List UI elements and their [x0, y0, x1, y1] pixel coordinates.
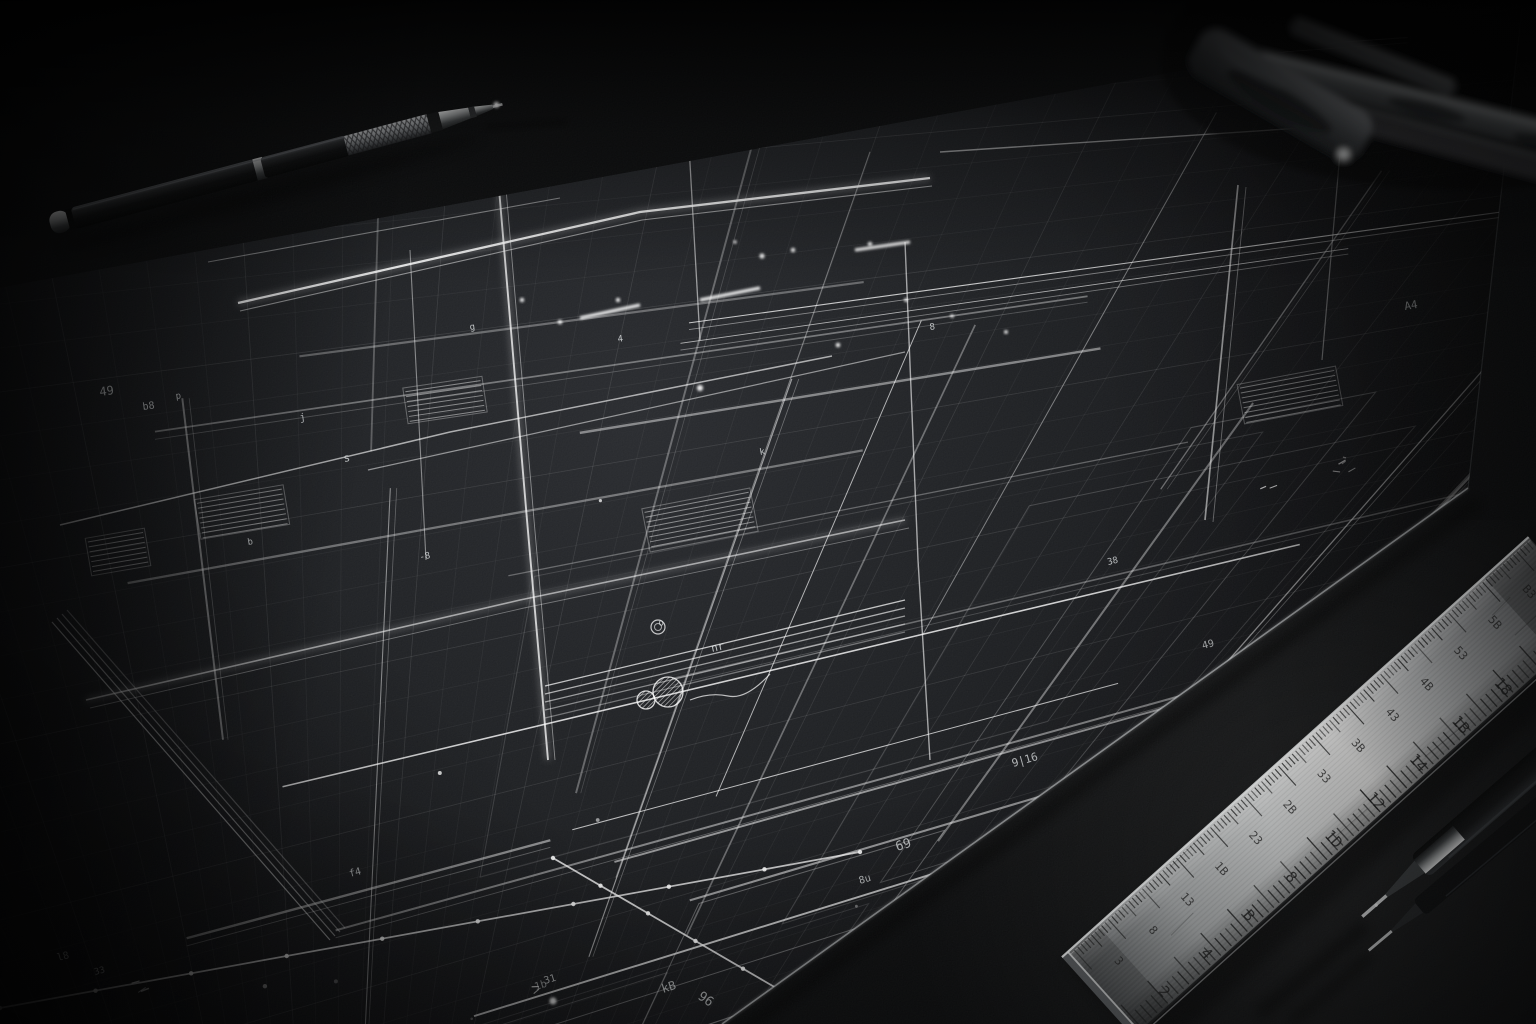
- film-grain: [0, 0, 1536, 1024]
- blueprint-photo-canvas: 1b7749b8pjsgonrk698u9|1649A4kB96f4l83331…: [0, 0, 1536, 1024]
- photo-blueprint-scene: 1b7749b8pjsgonrk698u9|1649A4kB96f4l83331…: [0, 0, 1536, 1024]
